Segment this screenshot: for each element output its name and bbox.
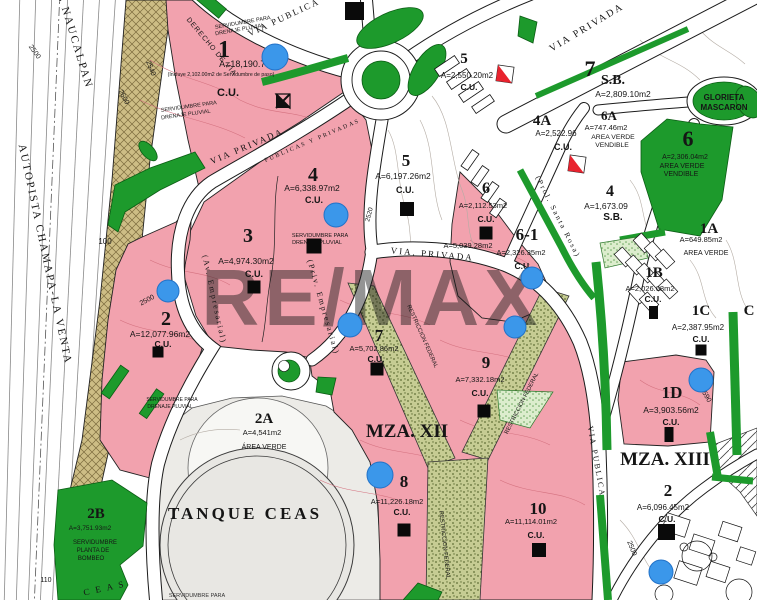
lot7-area: A=5,702.86m2 xyxy=(350,344,399,353)
glorieta-label-2: MASCARON xyxy=(700,103,747,112)
lot1c-area: A=2,387.95m2 xyxy=(672,323,725,332)
lot3-area: A=4,974.30m2 xyxy=(218,256,274,266)
listing-marker xyxy=(367,462,393,488)
lot1-note: (Incluye 2,102.00m2 de Servidumbre de pa… xyxy=(168,72,275,78)
legend-square xyxy=(345,2,364,20)
listing-marker xyxy=(504,316,526,338)
lot1c-number: 1C xyxy=(692,303,710,319)
lot9-use: C.U. xyxy=(472,388,489,398)
lot1d-use: C.U. xyxy=(663,417,680,427)
lot6a-line3: VENDIBLE xyxy=(595,142,629,149)
lot1-use: C.U. xyxy=(217,87,239,99)
lot10-use: C.U. xyxy=(528,530,545,540)
lot4a-use: C.U. xyxy=(554,142,572,152)
lot7-number: 7 xyxy=(375,326,384,345)
svg-text:SERVIDUMBRE PARA: SERVIDUMBRE PARA xyxy=(292,233,349,239)
lot2b-line4: BOMBEO xyxy=(78,556,105,562)
lot1b-use: C.U. xyxy=(645,294,662,304)
lot5t-use: C.U. xyxy=(461,82,478,92)
lot8-number: 8 xyxy=(400,472,409,491)
lot7sb-area: A=2,809.10m2 xyxy=(595,89,651,99)
lot61-number: 6-1 xyxy=(516,225,539,244)
lot1c-use: C.U. xyxy=(693,334,710,344)
watermark: RE/MAX xyxy=(201,253,542,342)
lot5-number: 5 xyxy=(402,151,411,170)
svg-text:110: 110 xyxy=(40,577,51,584)
lot6-use: C.U. xyxy=(478,214,495,224)
glorieta-label-1: GLORIETA xyxy=(704,93,745,102)
lot10-number: 10 xyxy=(530,499,547,518)
cul-de-sac xyxy=(272,352,310,390)
lot4a-area: A=2,522.96 xyxy=(535,129,577,138)
lot5t-area: A=2,550.20m2 xyxy=(441,71,494,80)
lot4sb-area: A=1,673.09 xyxy=(584,201,628,211)
listing-marker xyxy=(689,368,713,392)
lot6a-line2: AREA VERDE xyxy=(591,134,635,141)
listing-marker xyxy=(157,280,179,302)
lot6-area: A=2,112.53m2 xyxy=(459,201,507,210)
lot5-area: A=6,197.26m2 xyxy=(375,171,431,181)
lot1b-number: 1B xyxy=(645,265,663,281)
mza-xiii-title: MZA. XIII xyxy=(620,449,710,470)
lot6v-number: 6 xyxy=(683,126,694,151)
lot4a-number: 4A xyxy=(533,113,552,129)
lot1a-area: A=649.85m2 xyxy=(680,235,723,244)
lot2x-use: C.U. xyxy=(659,514,676,524)
lot9-number: 9 xyxy=(482,353,491,372)
area-extra-label: A=5,039.28m2 xyxy=(444,241,493,250)
lot1d-area: A=3,903.56m2 xyxy=(643,405,699,415)
tanque-ceas-title: TANQUE CEAS xyxy=(168,504,322,523)
lot10-area: A=11,114.01m2 xyxy=(505,517,557,526)
lot2x-number: 2 xyxy=(664,481,673,500)
lot7sb-number: 7 xyxy=(585,56,596,81)
lot2b-number: 2B xyxy=(87,506,105,522)
servidumbre-label-2a: SERVIDUMBRE PARA DRENAJE PLUVIAL xyxy=(146,397,198,410)
servidumbre-label-bottom: SERVIDUMBRE PARA xyxy=(169,593,226,599)
lot61-area: A=2,326.35m2 xyxy=(497,248,546,257)
lot4-use: C.U. xyxy=(305,195,323,205)
mza-xii-title: MZA. XII xyxy=(366,421,448,442)
lot6a-area: A=747.46m2 xyxy=(585,123,628,132)
lot2b-line2: SERVIDUMBRE xyxy=(73,540,117,546)
lot5-use: C.U. xyxy=(396,185,414,195)
lot1a-line2: AREA VERDE xyxy=(684,250,729,257)
lot6v-area: A=2,306.04m2 xyxy=(662,154,708,161)
lot8-area: A=11,226.18m2 xyxy=(371,497,424,506)
listing-marker xyxy=(649,560,673,584)
lot6v-line2: AREA VERDE xyxy=(660,163,705,170)
lot4sb-number: 4 xyxy=(606,183,614,200)
lot1d-number: 1D xyxy=(662,383,683,402)
plat-map: RE/MAX 1 A=18,190.79m2 (Incluye 2,102.00… xyxy=(0,0,757,600)
lot1b-area: A=2,026.68m2 xyxy=(626,284,675,293)
lot2b-area: A=3,751.93m2 xyxy=(69,525,112,532)
lot2-area: A=12,077.96m2 xyxy=(130,329,191,339)
svg-text:100: 100 xyxy=(98,237,112,246)
lot6-number: 6 xyxy=(482,180,490,197)
listing-marker xyxy=(521,267,543,289)
svg-text:DRENAJE PLUVIAL: DRENAJE PLUVIAL xyxy=(147,404,193,410)
lot2x-area: A=6,096.45m2 xyxy=(637,503,690,512)
lot4sb-sub: S.B. xyxy=(603,212,623,223)
lot9-area: A=7,332.18m2 xyxy=(456,375,505,384)
lot8-use: C.U. xyxy=(394,507,411,517)
listing-marker xyxy=(324,203,348,227)
lot2b-line3: PLANTA DE xyxy=(77,548,110,554)
svg-text:SERVIDUMBRE PARA: SERVIDUMBRE PARA xyxy=(146,397,198,403)
lot6a-number: 6A xyxy=(601,108,618,123)
lot4-area: A=6,338.97m2 xyxy=(284,183,340,193)
lot2a-number: 2A xyxy=(255,411,274,427)
lot5t-number: 5 xyxy=(460,51,468,67)
lot2a-line2: ÁREA VERDE xyxy=(242,442,287,451)
listing-marker xyxy=(262,44,288,70)
lot3-use: C.U. xyxy=(245,269,263,279)
listing-marker xyxy=(338,313,362,337)
flag-marker-1 xyxy=(496,65,514,83)
lot3-number: 3 xyxy=(243,225,253,247)
lot6v-line3: VENDIBLE xyxy=(664,171,699,178)
flag-marker-2 xyxy=(568,155,586,173)
lot7sb-sub: S.B. xyxy=(601,73,625,88)
lot2a-area: A=4,541m2 xyxy=(243,428,282,437)
lot-c-number: C xyxy=(744,303,755,319)
lot2-number: 2 xyxy=(161,308,171,330)
